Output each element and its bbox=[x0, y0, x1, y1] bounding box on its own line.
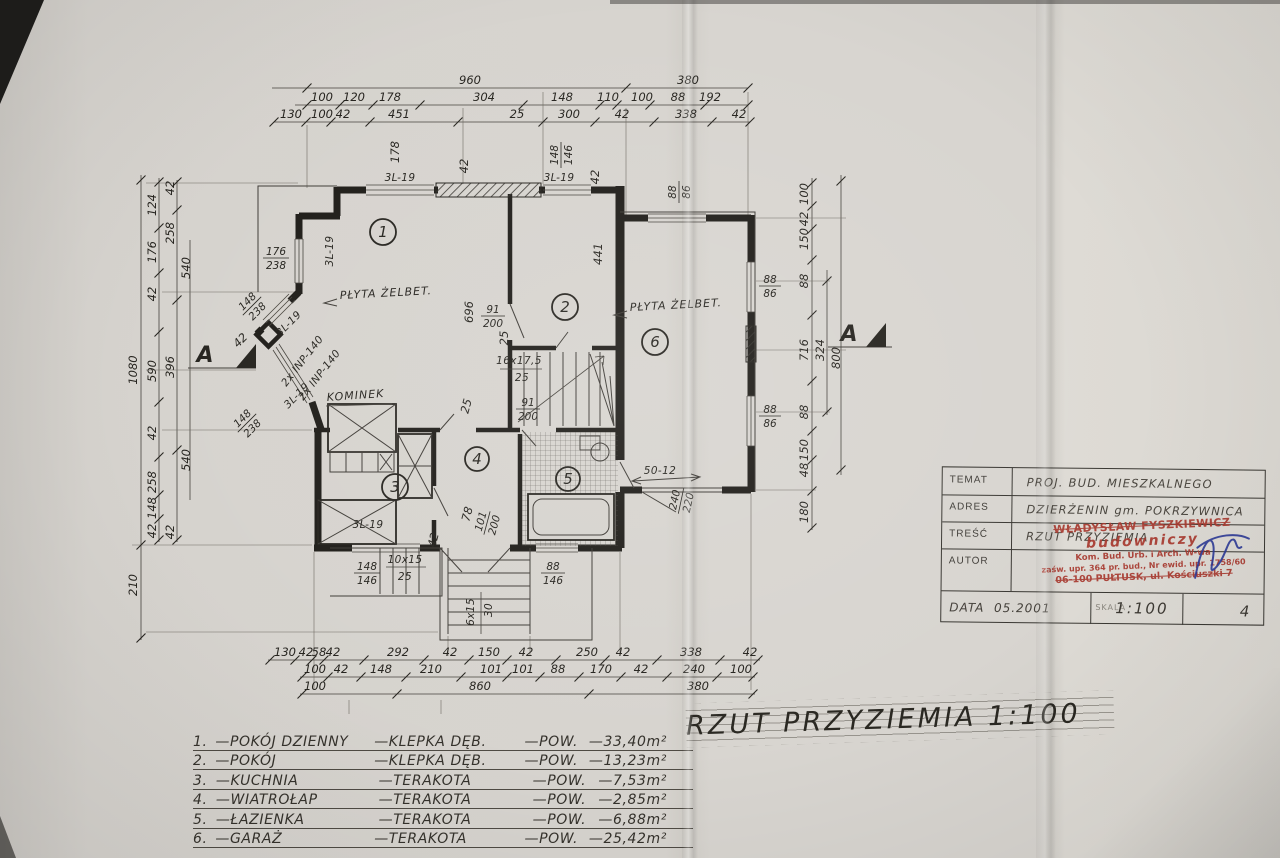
stair-label: 25 bbox=[398, 571, 412, 583]
legend-material: KLEPKA DĘB. bbox=[389, 753, 525, 769]
dim-label: 148 bbox=[551, 90, 573, 104]
stair-entry bbox=[448, 548, 530, 634]
door-dim: 101200 bbox=[472, 508, 503, 538]
bathroom bbox=[522, 432, 618, 546]
legend-no: 6. bbox=[193, 831, 215, 847]
room-circle-1: 1 bbox=[370, 219, 396, 245]
dim-label: 100 bbox=[311, 107, 333, 121]
tb-date-value: 05.2001 bbox=[994, 601, 1051, 616]
dim-label: 210 bbox=[420, 662, 442, 676]
legend-pow: POW. bbox=[539, 734, 589, 750]
dash: — bbox=[215, 753, 230, 769]
dash: — bbox=[215, 734, 230, 750]
legend-area: 25,42m² bbox=[603, 831, 693, 847]
dim-label: 42 bbox=[163, 525, 177, 540]
dim-labels: 960 380 100 120 178 304 148 110 100 88 1… bbox=[126, 73, 843, 693]
dim-label: 100 bbox=[631, 90, 653, 104]
tb-label-autor: AUTOR bbox=[942, 548, 1012, 591]
dash: — bbox=[379, 773, 394, 789]
dim-label: 800 bbox=[829, 347, 843, 369]
scan-edge bbox=[610, 0, 1280, 4]
legend-pow: POW. bbox=[547, 812, 598, 828]
slab-label: PŁYTA ŻELBET. bbox=[339, 284, 432, 302]
tb-date-cell: DATA 05.2001 bbox=[941, 591, 1091, 624]
dim-label: 100 bbox=[730, 662, 752, 676]
dash: — bbox=[216, 812, 231, 828]
garage-door-dim: 240220 bbox=[667, 486, 698, 517]
dim-label: 88 bbox=[671, 90, 686, 104]
signature bbox=[1186, 522, 1258, 590]
door-dim: 91200 bbox=[516, 397, 540, 423]
legend-room-name: WIATROŁAP bbox=[231, 792, 379, 808]
dim-den: 200 bbox=[483, 318, 503, 330]
dim-den: 238 bbox=[266, 260, 286, 272]
dash: — bbox=[589, 753, 604, 769]
annotations: 3L-19 3L-19 3L-19 3L-19 3L-19 3L-19 2x I… bbox=[274, 172, 723, 634]
dim-label: 100 bbox=[797, 183, 811, 205]
garage-lintel-label: 50-12 bbox=[644, 465, 677, 477]
window-dim: 8886 bbox=[759, 404, 781, 430]
dim-label: 42 bbox=[336, 107, 351, 121]
tb-sheet-number: 4 bbox=[1183, 594, 1263, 626]
dim-den: 146 bbox=[543, 575, 563, 587]
legend-no: 2. bbox=[193, 753, 215, 769]
window-dim: 88146 bbox=[541, 561, 565, 587]
dim-den: 86 bbox=[763, 288, 777, 300]
dim-label: 716 bbox=[797, 339, 811, 361]
tb-label-tresc: TREŚĆ bbox=[942, 521, 1012, 549]
legend-room-name: POKÓJ DZIENNY bbox=[230, 734, 374, 750]
reinforced-beam bbox=[436, 183, 756, 362]
stair-label: 6x15 bbox=[465, 598, 477, 626]
dim-label: 25 bbox=[457, 397, 474, 415]
dash: — bbox=[524, 753, 539, 769]
tb-scale-cell: SKALA 1:100 bbox=[1091, 593, 1183, 625]
dim-label: 78 bbox=[458, 505, 475, 523]
window-dim: 148238 bbox=[229, 405, 266, 442]
room-number-label: 4 bbox=[472, 450, 482, 468]
dash: — bbox=[379, 812, 394, 828]
legend-row: 3.— KUCHNIA— TERAKOTA— POW.— 7,53m² bbox=[193, 770, 693, 790]
drawing-sheet: 1 2 3 4 5 6 960 380 100 120 178 304 148 … bbox=[0, 0, 1280, 858]
lintel-label: 3L-19 bbox=[353, 519, 384, 531]
dash: — bbox=[379, 792, 394, 808]
dim-label: 696 bbox=[462, 301, 476, 323]
legend-row: 6.— GARAŻ— TERAKOTA— POW.— 25,42m² bbox=[193, 829, 693, 849]
drawing-title-text: RZUT PRZYZIEMIA 1:100 bbox=[686, 698, 1082, 741]
legend-no: 3. bbox=[193, 773, 216, 789]
dash: — bbox=[598, 812, 613, 828]
dim-label: 42 bbox=[326, 645, 341, 659]
stair-label: 30 bbox=[483, 603, 495, 617]
dim-label: 88 bbox=[797, 405, 811, 420]
dash: — bbox=[374, 831, 389, 847]
dim-label: 960 bbox=[459, 73, 481, 87]
dim-label: 124 bbox=[145, 194, 159, 216]
legend-row: 5.— ŁAZIENKA— TERAKOTA— POW.— 6,88m² bbox=[193, 809, 693, 829]
dash: — bbox=[216, 773, 231, 789]
legend-no: 5. bbox=[193, 812, 216, 828]
room-circle-6: 6 bbox=[642, 329, 668, 355]
dash: — bbox=[598, 773, 613, 789]
room-circle-2: 2 bbox=[552, 294, 578, 320]
dim-label: 540 bbox=[179, 257, 193, 279]
dim-label: 42 bbox=[163, 181, 177, 196]
legend-area: 2,85m² bbox=[613, 792, 693, 808]
dim-label: 130 bbox=[274, 645, 296, 659]
dim-num: 148 bbox=[549, 145, 561, 165]
dim-num: 88 bbox=[763, 274, 777, 286]
dim-den: 86 bbox=[681, 185, 693, 199]
dim-label: 150 bbox=[797, 228, 811, 250]
dim-label: 25 bbox=[510, 107, 525, 121]
dim-label: 42 bbox=[457, 159, 471, 174]
legend-area: 13,23m² bbox=[603, 753, 693, 769]
dim-label: 42 bbox=[634, 662, 649, 676]
dim-num: 88 bbox=[667, 185, 679, 199]
tb-scale-value: 1:100 bbox=[1115, 599, 1168, 618]
title-block: TEMAT PROJ. BUD. MIESZKALNEGO ADRES DZIE… bbox=[940, 466, 1266, 625]
dim-label: 42 bbox=[145, 524, 159, 539]
dim-label: 101 bbox=[512, 662, 534, 676]
dim-num: 88 bbox=[763, 404, 777, 416]
dim-label: 338 bbox=[675, 107, 697, 121]
dim-den: 146 bbox=[357, 575, 377, 587]
dim-label: 451 bbox=[388, 107, 410, 121]
tb-date-label: DATA bbox=[949, 600, 984, 614]
dim-num: 176 bbox=[266, 246, 286, 258]
dash: — bbox=[524, 734, 539, 750]
dim-label: 42 bbox=[443, 645, 458, 659]
dim-label: 178 bbox=[379, 90, 401, 104]
door-dim: 91200 bbox=[481, 304, 505, 330]
dim-label: 42 bbox=[732, 107, 747, 121]
dim-label: 178 bbox=[388, 141, 402, 163]
dim-label: 590 bbox=[145, 360, 159, 382]
legend-no: 4. bbox=[193, 792, 216, 808]
dash: — bbox=[533, 792, 548, 808]
legend-no: 1. bbox=[193, 734, 215, 750]
window-dim: 148238 bbox=[234, 288, 271, 325]
dim-label: 42 bbox=[230, 330, 250, 350]
room-number-label: 2 bbox=[560, 298, 570, 316]
window-dim: 148146 bbox=[354, 561, 380, 587]
dim-label: 148 bbox=[145, 497, 159, 519]
dim-label: 42 bbox=[743, 645, 758, 659]
dim-label: 25 bbox=[497, 331, 511, 346]
legend-material: TERAKOTA bbox=[393, 792, 532, 808]
dim-label: 42 bbox=[797, 212, 811, 227]
dim-label: 250 bbox=[576, 645, 598, 659]
dim-label: 150 bbox=[478, 645, 500, 659]
dim-label: 100 bbox=[304, 662, 326, 676]
dim-label: 170 bbox=[590, 662, 612, 676]
section-letter: A bbox=[838, 322, 857, 347]
dim-den: 86 bbox=[763, 418, 777, 430]
dim-label: 258 bbox=[163, 222, 177, 244]
fireplace bbox=[328, 404, 396, 472]
legend-room-name: POKÓJ bbox=[230, 753, 374, 769]
legend-material: TERAKOTA bbox=[393, 812, 532, 828]
dash: — bbox=[598, 792, 613, 808]
dim-label: 324 bbox=[813, 339, 827, 361]
dim-label: 304 bbox=[473, 90, 495, 104]
dim-label: 176 bbox=[145, 241, 159, 263]
dim-label: 42 bbox=[588, 170, 602, 185]
dim-den: 220 bbox=[681, 491, 697, 513]
dim-label: 110 bbox=[597, 90, 619, 104]
legend-row: 1.— POKÓJ DZIENNY— KLEPKA DĘB.— POW.— 33… bbox=[193, 731, 693, 751]
dash: — bbox=[589, 734, 604, 750]
tb-label-adres: ADRES bbox=[942, 494, 1012, 522]
window-dim: 8886 bbox=[667, 181, 693, 203]
tb-label-temat: TEMAT bbox=[943, 467, 1013, 495]
legend-row: 2.— POKÓJ— KLEPKA DĘB.— POW.— 13,23m² bbox=[193, 751, 693, 771]
dimension-chain-lines bbox=[132, 88, 846, 714]
dim-num: 91 bbox=[521, 397, 534, 409]
fireplace-label: KOMINEK bbox=[326, 387, 384, 404]
dim-label: 100 bbox=[311, 90, 333, 104]
stair-label: 10x15 bbox=[388, 554, 423, 566]
legend-material: TERAKOTA bbox=[389, 831, 525, 847]
dash: — bbox=[215, 831, 230, 847]
dim-label: 292 bbox=[387, 645, 409, 659]
slab-label: PŁYTA ŻELBET. bbox=[629, 296, 722, 314]
dash: — bbox=[374, 734, 389, 750]
legend-pow: POW. bbox=[539, 753, 589, 769]
dim-label: 441 bbox=[591, 243, 605, 265]
dim-label: 148 bbox=[370, 662, 392, 676]
dim-label: 100 bbox=[304, 679, 326, 693]
stair-label: 25 bbox=[515, 372, 529, 384]
legend-area: 7,53m² bbox=[613, 773, 693, 789]
dim-num: 91 bbox=[486, 304, 499, 316]
stair-label: 16x17,5 bbox=[496, 355, 542, 367]
dim-label: 42 bbox=[145, 287, 159, 302]
section-marker-right: A bbox=[828, 322, 892, 347]
room-number-label: 5 bbox=[563, 470, 573, 488]
dim-num: 88 bbox=[546, 561, 560, 573]
legend-material: KLEPKA DĘB. bbox=[389, 734, 525, 750]
stair-terrace bbox=[330, 548, 442, 596]
dim-label: 240 bbox=[683, 662, 705, 676]
legend-material: TERAKOTA bbox=[393, 773, 532, 789]
dash: — bbox=[374, 753, 389, 769]
dim-label: 396 bbox=[163, 356, 177, 378]
dim-label: 42 bbox=[616, 645, 631, 659]
legend-room-name: ŁAZIENKA bbox=[231, 812, 379, 828]
legend-area: 33,40m² bbox=[603, 734, 693, 750]
dim-label: 42 bbox=[145, 426, 159, 441]
section-letter: A bbox=[194, 343, 213, 368]
lintel-label: 3L-19 bbox=[274, 309, 304, 339]
dim-label: 380 bbox=[677, 73, 699, 87]
legend-room-name: KUCHNIA bbox=[231, 773, 379, 789]
lintel-label: 3L-19 bbox=[385, 172, 416, 184]
dim-den: 146 bbox=[563, 145, 575, 165]
window-dim: 176238 bbox=[263, 246, 289, 272]
dim-den: 200 bbox=[518, 411, 538, 423]
room-number-label: 6 bbox=[650, 333, 660, 351]
dash: — bbox=[216, 792, 231, 808]
dim-label: 192 bbox=[699, 90, 721, 104]
dim-label: 120 bbox=[343, 90, 365, 104]
dim-label: 300 bbox=[558, 107, 580, 121]
legend-pow: POW. bbox=[547, 792, 598, 808]
dim-label: 380 bbox=[687, 679, 709, 693]
dash: — bbox=[524, 831, 539, 847]
dim-label: 42 bbox=[334, 662, 349, 676]
dim-label: 860 bbox=[469, 679, 491, 693]
title-block-bottom: DATA 05.2001 SKALA 1:100 4 bbox=[941, 590, 1263, 625]
dim-label: 540 bbox=[179, 449, 193, 471]
lintel-label: 3L-19 bbox=[324, 236, 336, 267]
dim-label: 258 bbox=[145, 471, 159, 493]
legend-pow: POW. bbox=[539, 831, 589, 847]
dim-label: 210 bbox=[126, 574, 140, 596]
dim-label: 130 bbox=[280, 107, 302, 121]
tb-value-temat: PROJ. BUD. MIESZKALNEGO bbox=[1013, 468, 1265, 498]
room-number-label: 1 bbox=[378, 223, 388, 241]
dim-label: 48 bbox=[797, 463, 811, 478]
dim-label: 101 bbox=[480, 662, 502, 676]
window-dim: 148146 bbox=[549, 142, 575, 168]
legend-room-name: GARAŻ bbox=[230, 831, 374, 847]
dash: — bbox=[533, 812, 548, 828]
legend-row: 4.— WIATROŁAP— TERAKOTA— POW.— 2,85m² bbox=[193, 790, 693, 810]
dash: — bbox=[589, 831, 604, 847]
dim-label: 42 bbox=[615, 107, 630, 121]
dim-label: 1080 bbox=[126, 355, 140, 384]
dim-label: 150 bbox=[797, 439, 811, 461]
window-dim: 8886 bbox=[759, 274, 781, 300]
dim-label: 58 bbox=[312, 645, 327, 659]
room-number-label: 3 bbox=[390, 478, 400, 496]
dim-label: 42 bbox=[519, 645, 534, 659]
dim-num: 148 bbox=[357, 561, 377, 573]
dim-label: 338 bbox=[680, 645, 702, 659]
legend-pow: POW. bbox=[547, 773, 598, 789]
room-circle-4: 4 bbox=[465, 447, 489, 471]
dim-label: 88 bbox=[797, 274, 811, 289]
legend-area: 6,88m² bbox=[613, 812, 693, 828]
dim-label: 88 bbox=[551, 662, 566, 676]
lintel-label: 3L-19 bbox=[544, 172, 575, 184]
dim-label: 180 bbox=[797, 501, 811, 523]
section-marker-left: A bbox=[188, 343, 256, 368]
room-legend: 1.— POKÓJ DZIENNY— KLEPKA DĘB.— POW.— 33… bbox=[193, 731, 693, 848]
dash: — bbox=[533, 773, 548, 789]
